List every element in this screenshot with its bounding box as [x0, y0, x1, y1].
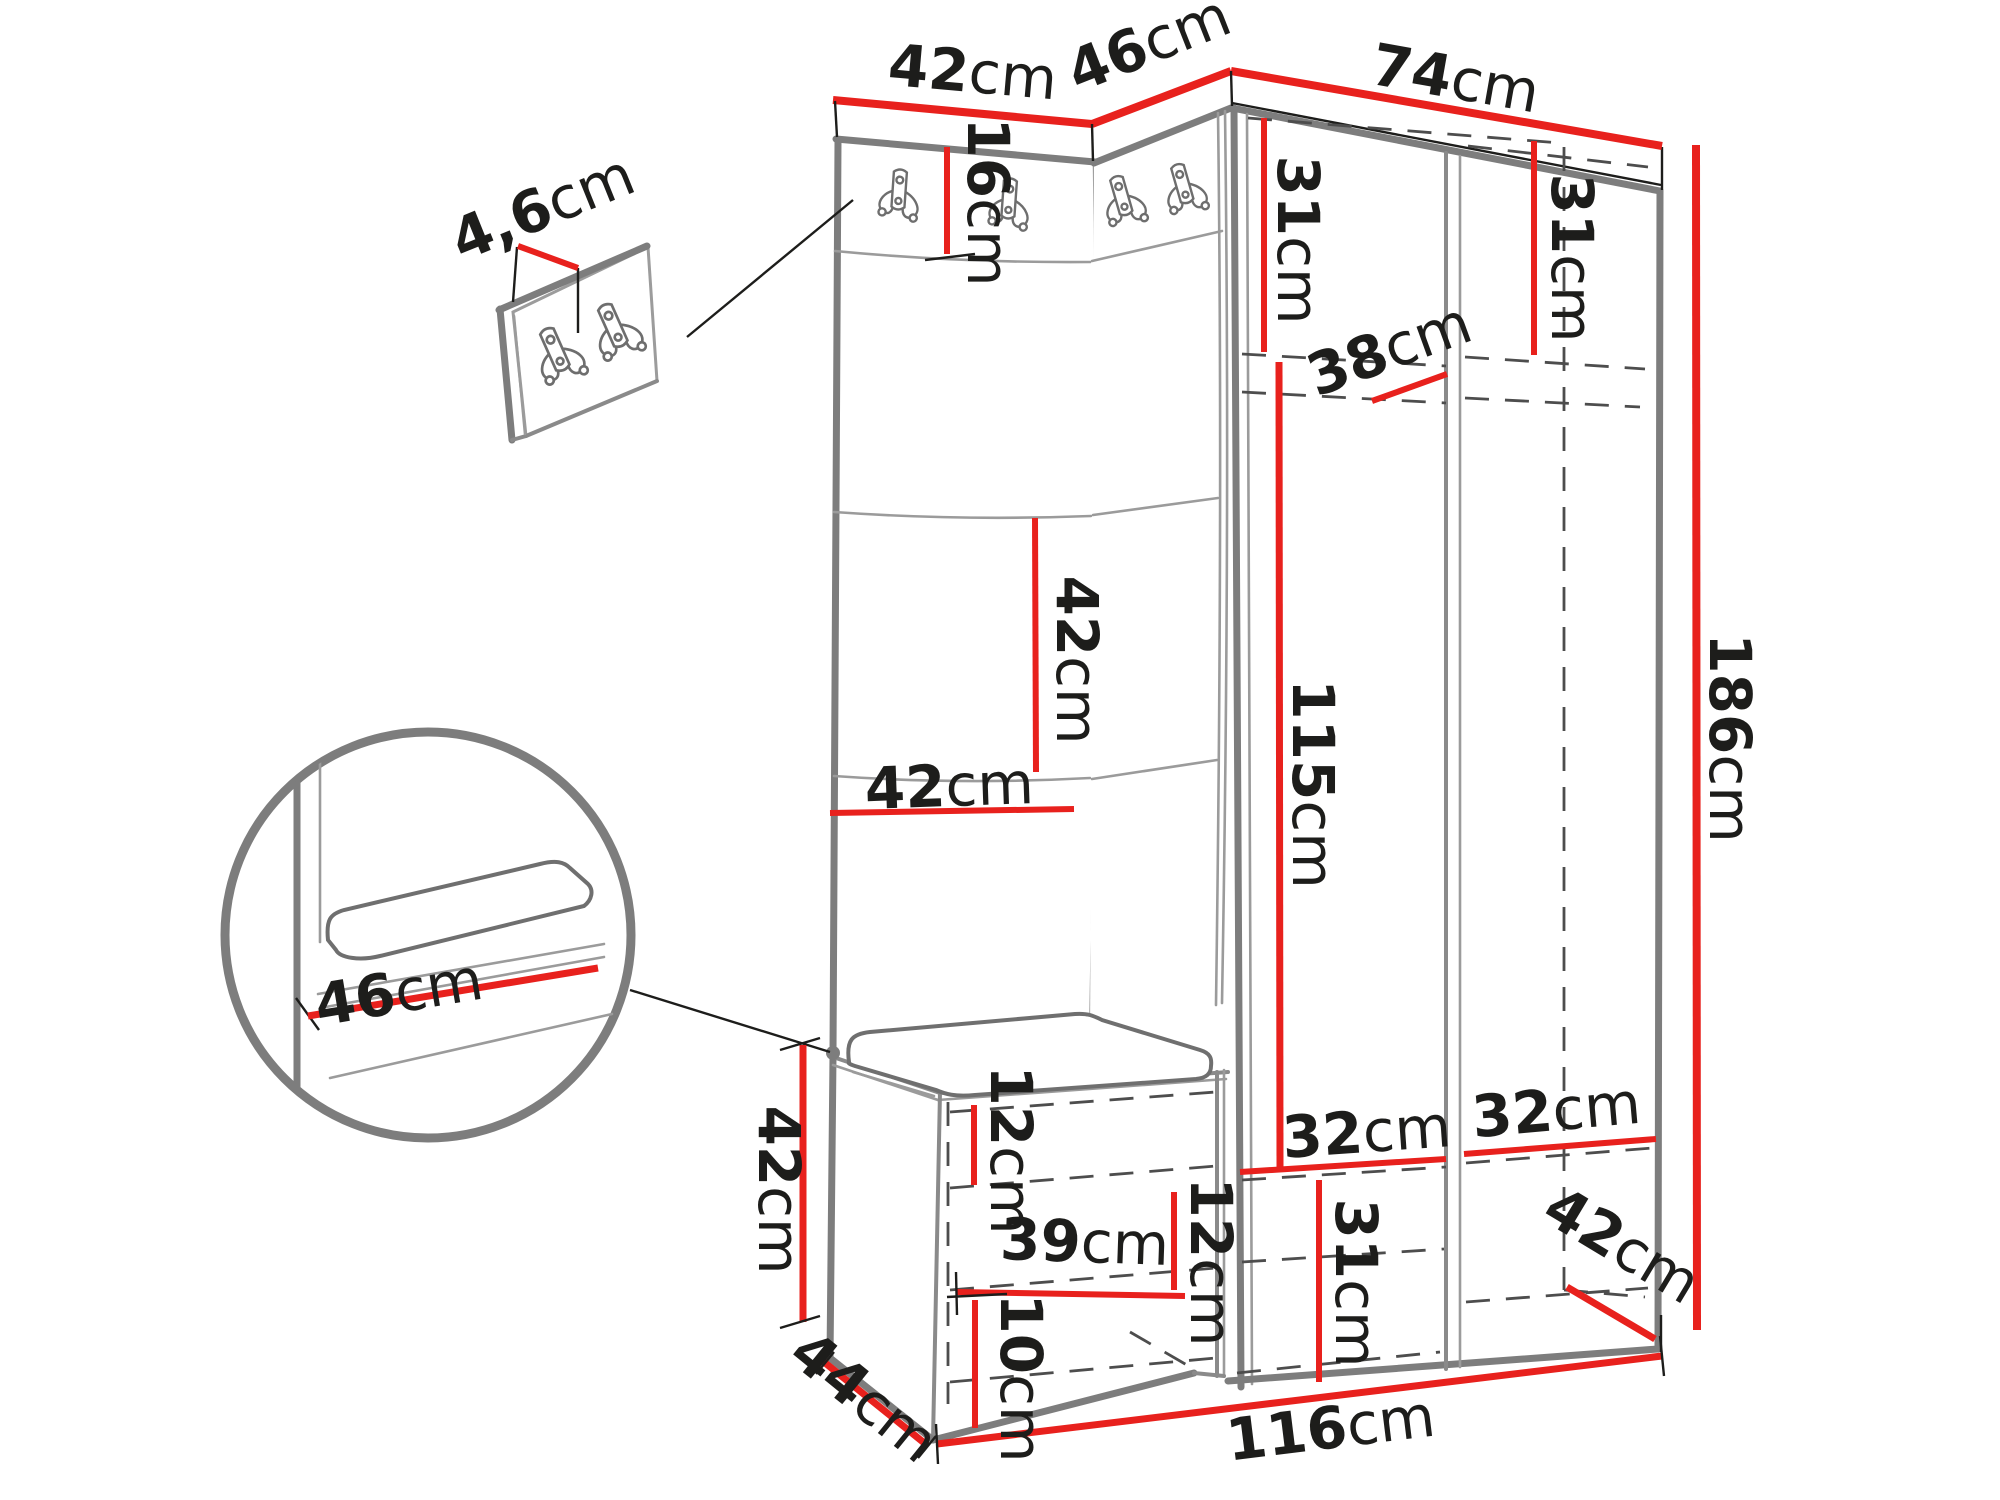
dimension-line-square-height [1035, 518, 1036, 772]
dim-corner-width: 46cm [1058, 0, 1240, 106]
dim-right-width: 74cm [1366, 30, 1544, 126]
dim-shoe-gap-lower: 12cm [1177, 1177, 1245, 1346]
dim-bottom-gap: 10cm [987, 1293, 1055, 1462]
dim-hook-strip-height: 16cm [954, 117, 1022, 286]
dim-lower-section-height: 31cm [1322, 1198, 1390, 1367]
dim-bench-height: 42cm [745, 1105, 813, 1274]
dim-top-left-width: 42cm [886, 31, 1060, 113]
diagram-page: 46cm [0, 0, 2000, 1500]
dim-total-width: 116cm [1222, 1382, 1438, 1475]
dim-upper-right-height: 31cm [1538, 173, 1606, 342]
bench-seat-detail-circle: 46cm [225, 732, 830, 1138]
leader-line [687, 200, 853, 337]
dim-hanging-height: 115cm [1279, 679, 1347, 888]
furniture-dimension-diagram: 46cm [0, 0, 2000, 1500]
dim-bench-inner-width: 39cm [999, 1205, 1170, 1279]
dim-total-height: 186cm [1696, 633, 1764, 842]
dim-panel-width: 42cm [864, 749, 1035, 823]
leader-line [630, 990, 830, 1052]
dim-square-height: 42cm [1043, 575, 1111, 744]
dim-upper-left-height: 31cm [1264, 155, 1332, 324]
dim-compartment-left-width: 32cm [1280, 1092, 1453, 1172]
